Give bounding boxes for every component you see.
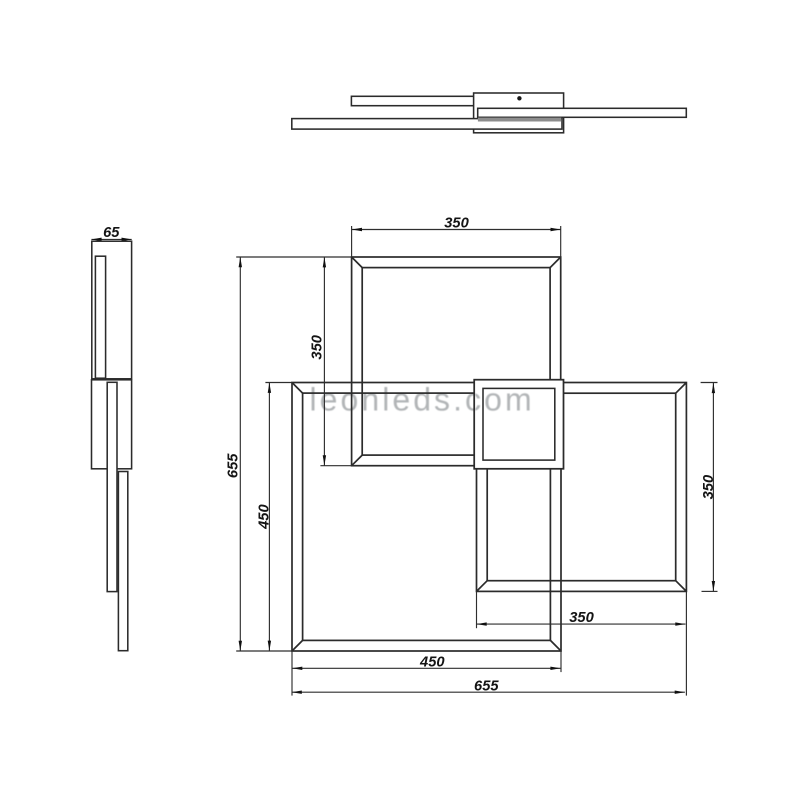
svg-text:65: 65 bbox=[103, 225, 120, 241]
svg-text:450: 450 bbox=[419, 655, 445, 671]
svg-text:655: 655 bbox=[226, 453, 242, 478]
svg-text:350: 350 bbox=[444, 216, 469, 232]
svg-text:350: 350 bbox=[701, 474, 717, 499]
svg-text:350: 350 bbox=[569, 610, 594, 626]
svg-text:350: 350 bbox=[310, 334, 326, 359]
svg-text:655: 655 bbox=[474, 678, 499, 694]
svg-text:450: 450 bbox=[256, 504, 272, 530]
